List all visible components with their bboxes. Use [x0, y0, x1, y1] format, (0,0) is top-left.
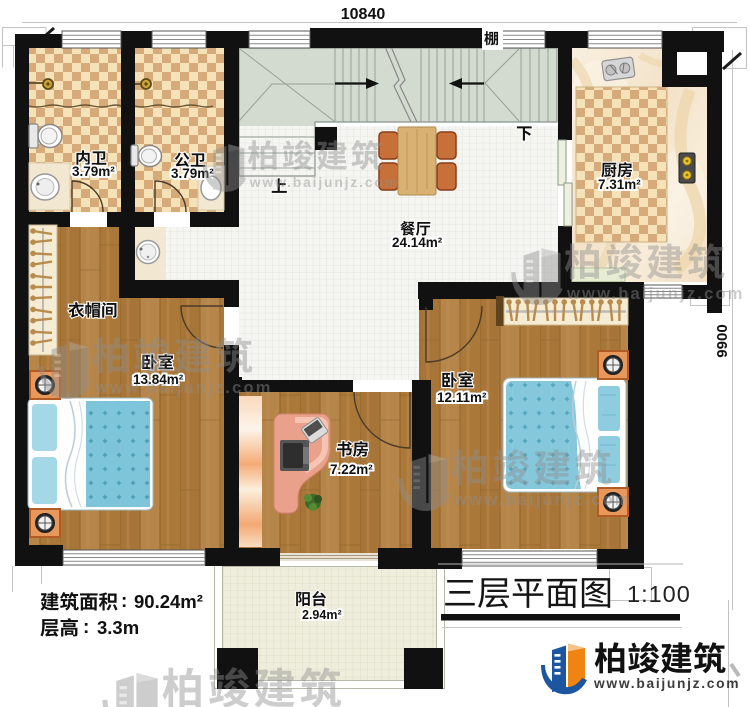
svg-text:3.3m: 3.3m: [97, 617, 139, 638]
svg-text:7.31m²: 7.31m²: [598, 177, 641, 192]
svg-text:7.22m²: 7.22m²: [330, 462, 373, 477]
svg-text:24.14m²: 24.14m²: [392, 235, 443, 250]
svg-text:2.94m²: 2.94m²: [302, 608, 342, 622]
svg-text::: :: [83, 617, 89, 638]
svg-text:12.11m²: 12.11m²: [437, 390, 487, 405]
svg-text:www.baijunjz.com: www.baijunjz.com: [593, 676, 740, 691]
svg-text:9900: 9900: [714, 324, 731, 357]
svg-text:90.24m²: 90.24m²: [134, 591, 203, 612]
svg-text:1:100: 1:100: [627, 581, 691, 607]
svg-text::: :: [121, 591, 127, 612]
svg-text:10840: 10840: [341, 6, 386, 23]
svg-text:3.79m²: 3.79m²: [72, 164, 115, 179]
